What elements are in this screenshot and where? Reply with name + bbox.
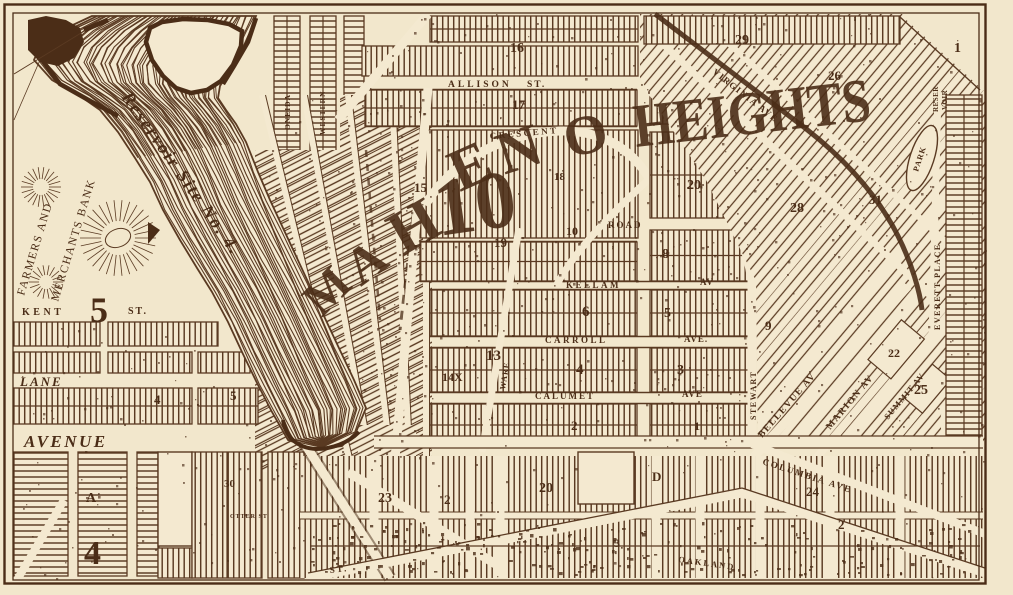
- svg-text:1: 1: [694, 419, 700, 433]
- svg-text:ALLISON: ALLISON: [448, 80, 512, 90]
- svg-text:13: 13: [486, 348, 501, 364]
- svg-text:30: 30: [224, 478, 236, 490]
- svg-text:24: 24: [806, 484, 820, 499]
- svg-text:RESER: RESER: [932, 86, 940, 112]
- svg-text:16: 16: [510, 41, 524, 56]
- svg-text:4: 4: [576, 362, 584, 378]
- svg-text:3: 3: [677, 363, 684, 378]
- svg-text:8: 8: [662, 247, 669, 262]
- svg-text:5: 5: [664, 306, 671, 321]
- svg-text:AVE.: AVE.: [684, 334, 708, 344]
- svg-text:STEWART: STEWART: [749, 371, 758, 420]
- svg-text:18: 18: [554, 171, 566, 183]
- svg-text:5: 5: [90, 290, 108, 330]
- svg-text:AV: AV: [700, 277, 714, 287]
- svg-text:ONEIDA: ONEIDA: [283, 94, 292, 130]
- svg-text:LANE: LANE: [19, 374, 63, 389]
- svg-text:17: 17: [512, 97, 526, 112]
- svg-text:2: 2: [838, 517, 845, 532]
- svg-text:6: 6: [582, 304, 590, 320]
- svg-text:4: 4: [154, 392, 161, 407]
- svg-text:ST.: ST.: [527, 80, 546, 90]
- svg-text:4: 4: [84, 535, 101, 572]
- svg-text:20: 20: [687, 178, 701, 193]
- svg-text:5: 5: [230, 388, 237, 403]
- svg-text:9: 9: [765, 318, 772, 333]
- svg-text:A: A: [86, 491, 97, 506]
- svg-text:AVE: AVE: [682, 389, 703, 399]
- svg-text:AVENUE: AVENUE: [23, 432, 108, 451]
- svg-text:KENT: KENT: [22, 307, 64, 318]
- svg-text:ST.: ST.: [329, 563, 349, 575]
- svg-text:2: 2: [571, 418, 578, 433]
- svg-text:14X: 14X: [442, 370, 463, 384]
- svg-text:2: 2: [444, 492, 451, 507]
- svg-text:22: 22: [888, 346, 900, 360]
- svg-text:VOIR: VOIR: [941, 89, 949, 110]
- svg-text:31: 31: [869, 192, 882, 207]
- svg-text:23: 23: [378, 491, 392, 506]
- svg-text:CALUMET: CALUMET: [535, 391, 595, 401]
- svg-text:WESTERN: WESTERN: [318, 90, 327, 135]
- svg-text:10: 10: [428, 152, 522, 254]
- svg-text:29: 29: [735, 33, 749, 48]
- svg-text:25: 25: [914, 383, 928, 398]
- svg-text:ST.: ST.: [128, 306, 148, 317]
- svg-text:EVERETT PLACE: EVERETT PLACE: [933, 243, 942, 330]
- svg-text:D: D: [652, 469, 661, 484]
- svg-text:KELLAM: KELLAM: [566, 280, 621, 290]
- svg-text:1: 1: [954, 41, 961, 56]
- svg-text:28: 28: [790, 201, 804, 216]
- svg-text:OTTER ST: OTTER ST: [230, 514, 268, 520]
- svg-text:ROAD: ROAD: [608, 220, 643, 230]
- svg-text:20: 20: [539, 481, 553, 496]
- svg-text:CARROLL: CARROLL: [545, 335, 608, 345]
- svg-text:3: 3: [614, 536, 620, 550]
- svg-text:10: 10: [566, 224, 578, 238]
